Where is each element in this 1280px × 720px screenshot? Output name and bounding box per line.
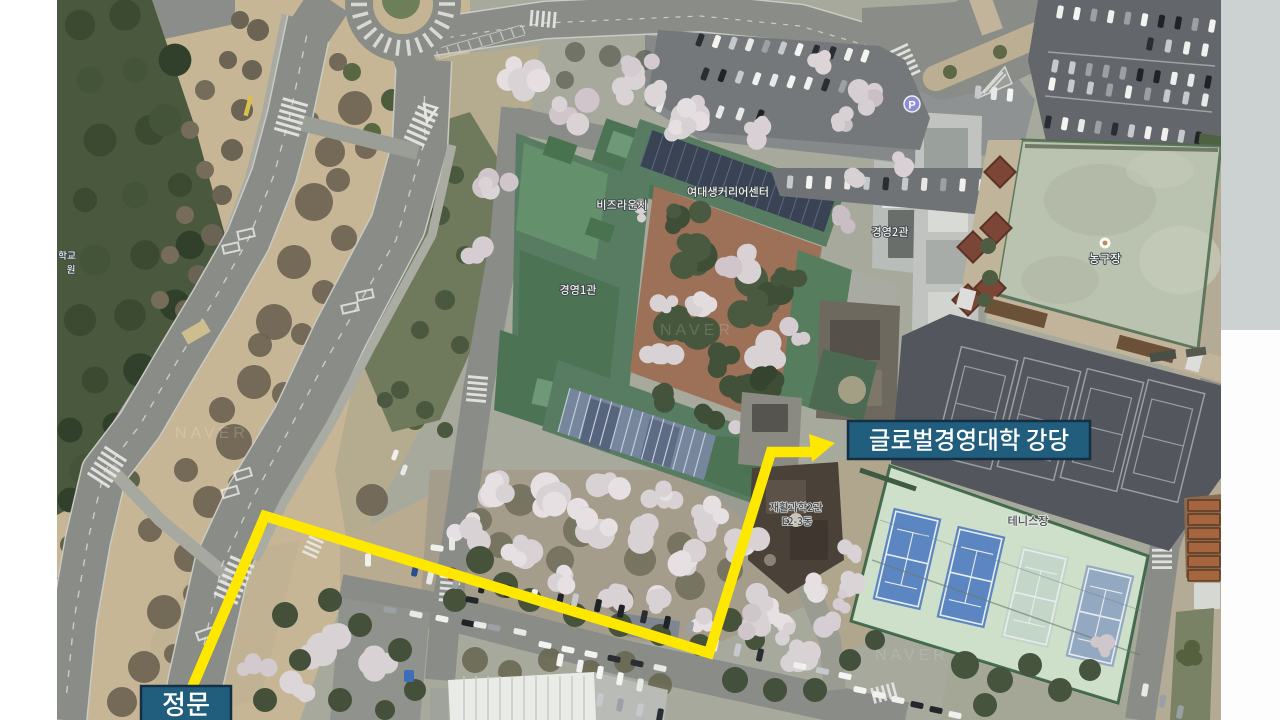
svg-text:NAVER: NAVER: [175, 425, 249, 442]
svg-text:NAVER: NAVER: [660, 322, 734, 339]
svg-text:P: P: [908, 100, 915, 112]
svg-text:NAVER: NAVER: [875, 647, 949, 664]
